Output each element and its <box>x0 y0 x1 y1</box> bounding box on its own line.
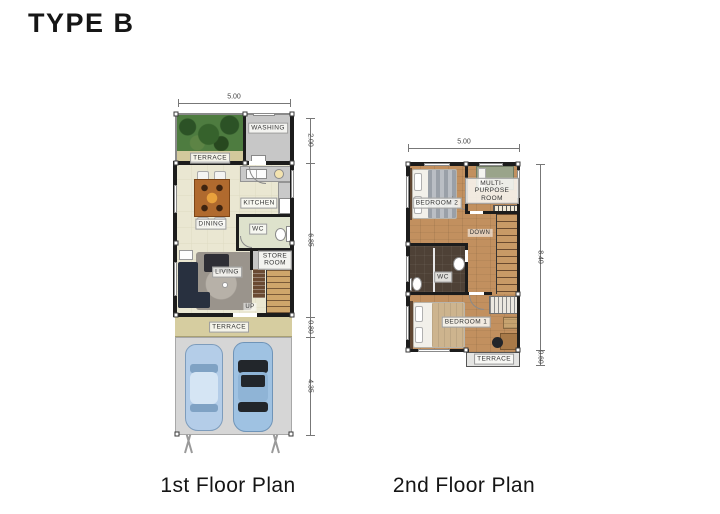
dimension-tick <box>306 163 315 164</box>
column-marker <box>290 241 295 246</box>
column-marker <box>406 292 411 297</box>
window <box>174 262 177 296</box>
wall <box>236 214 239 250</box>
floorplan-sheet: TYPE B 5.00 2.00 6.85 0.80 4.35 TERRACE … <box>0 0 720 514</box>
sink <box>453 257 465 271</box>
column-marker <box>406 162 411 167</box>
window <box>479 163 503 166</box>
shower-partition <box>433 248 435 292</box>
column-marker <box>406 348 411 353</box>
window <box>253 113 275 116</box>
garden-planting <box>175 114 245 151</box>
wc2-label: WC <box>434 272 452 283</box>
sofa-chaise <box>178 292 210 308</box>
dimension-value: 0.80 <box>307 320 314 334</box>
shelf-cabinet <box>253 269 265 298</box>
window <box>291 170 294 198</box>
dimension-value: 6.85 <box>307 233 314 247</box>
living-label: LIVING <box>212 267 242 278</box>
column-marker <box>464 162 469 167</box>
side-table <box>179 250 193 260</box>
column-marker <box>174 313 179 318</box>
window <box>174 185 177 213</box>
wall <box>175 113 293 115</box>
pillow <box>415 306 423 322</box>
column-marker <box>464 348 469 353</box>
bedroom1-label: BEDROOM 1 <box>442 317 491 328</box>
column-marker <box>243 112 248 117</box>
wall <box>175 113 177 163</box>
wc-label: WC <box>249 224 267 235</box>
desk-chair <box>492 337 503 348</box>
dimension-line <box>408 148 520 149</box>
column-marker <box>174 161 179 166</box>
dining-table <box>194 179 230 217</box>
floor1-caption: 1st Floor Plan <box>128 474 328 498</box>
dimension-tick <box>306 337 315 338</box>
terrace-top-label: TERRACE <box>190 153 230 164</box>
column-marker <box>516 348 521 353</box>
dimension-value: 0.60 <box>537 350 544 364</box>
store-room-label: STORE ROOM <box>258 251 292 270</box>
floor2-caption: 2nd Floor Plan <box>364 474 564 498</box>
terrace-mid-label: TERRACE <box>209 322 249 333</box>
door-opening <box>469 292 484 295</box>
down-label: DOWN <box>468 229 493 237</box>
wall <box>243 113 246 165</box>
dimension-tick <box>178 99 179 107</box>
wardrobe <box>489 296 519 314</box>
dimension-tick <box>306 118 315 119</box>
wall <box>236 214 293 217</box>
column-marker <box>290 313 295 318</box>
pillow <box>414 173 422 191</box>
door-opening <box>233 313 257 317</box>
dimension-tick <box>536 365 545 366</box>
door-opening <box>465 250 468 262</box>
dimension-tick <box>306 435 315 436</box>
dimension-tick <box>536 164 545 165</box>
washing-label: WASHING <box>248 123 288 134</box>
multipurpose-label: MULTI-PURPOSE ROOM <box>465 178 519 204</box>
column-marker <box>290 161 295 166</box>
pillow <box>415 327 423 343</box>
column-marker <box>174 241 179 246</box>
dimension-tick <box>306 317 315 318</box>
page-title: TYPE B <box>28 8 135 39</box>
bed-blanket <box>428 170 456 218</box>
dimension-tick <box>408 144 409 152</box>
staircase <box>496 214 518 294</box>
up-label: UP <box>243 303 256 311</box>
car-sunroof <box>241 375 265 387</box>
window <box>406 256 409 282</box>
terrace2-label: TERRACE <box>474 354 514 365</box>
window <box>418 349 450 352</box>
kitchen-label: KITCHEN <box>240 198 277 209</box>
column-marker <box>516 292 521 297</box>
door-opening <box>249 161 266 165</box>
column-marker <box>289 432 294 437</box>
window <box>406 306 409 340</box>
dimension-value: 5.00 <box>225 94 243 101</box>
window <box>406 176 409 208</box>
dining-label: DINING <box>195 219 226 230</box>
dimension-value: 5.00 <box>455 139 473 146</box>
car-rear-glass <box>238 402 268 412</box>
column-marker <box>243 161 248 166</box>
wall <box>250 250 253 270</box>
car-rear-glass <box>190 404 218 412</box>
toilet-bowl <box>275 228 286 241</box>
dimension-line <box>178 103 290 104</box>
dimension-value: 2.00 <box>307 133 314 147</box>
bedroom2-label: BEDROOM 2 <box>413 198 462 209</box>
toilet-bowl <box>412 277 422 291</box>
column-marker <box>516 162 521 167</box>
car-roof <box>190 372 218 404</box>
window <box>424 163 450 166</box>
column-marker <box>406 242 411 247</box>
coffee-table <box>222 282 228 288</box>
kitchen-burner <box>274 169 284 179</box>
dimension-value: 4.35 <box>307 379 314 393</box>
dimension-line <box>540 164 541 365</box>
column-marker <box>174 112 179 117</box>
dimension-value: 8.40 <box>537 250 544 264</box>
door-opening <box>470 211 483 214</box>
column-marker <box>175 432 180 437</box>
dimension-tick <box>519 144 520 152</box>
column-marker <box>290 112 295 117</box>
dimension-tick <box>290 99 291 107</box>
staircase <box>266 270 292 314</box>
wall <box>406 243 468 246</box>
